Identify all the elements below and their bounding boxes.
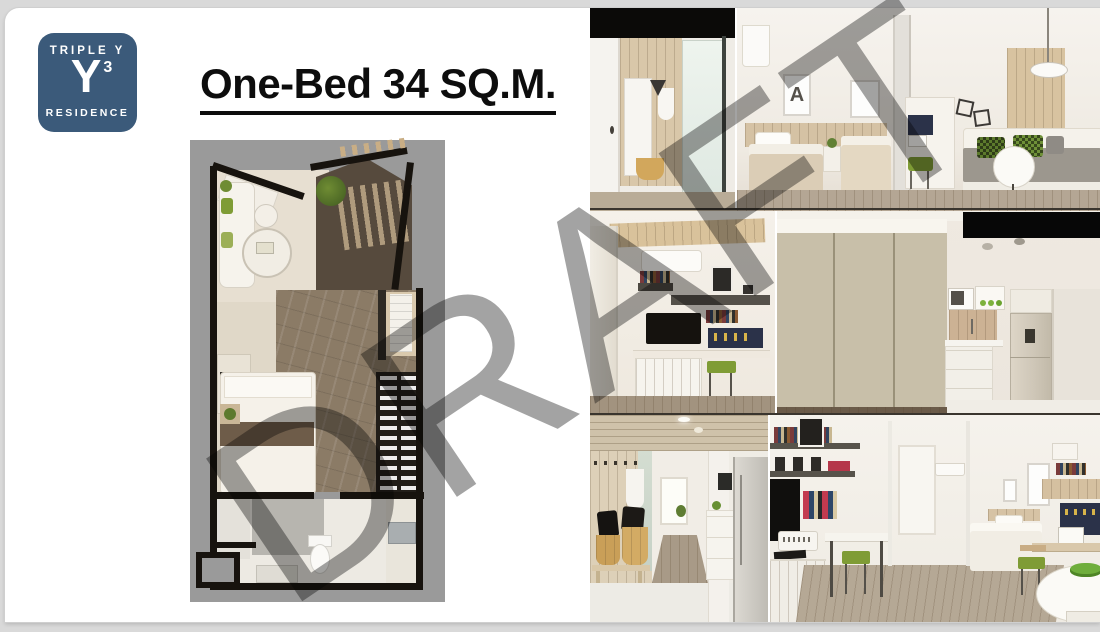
plan-sofa-plant [220, 180, 232, 192]
desk-pegboard [908, 115, 933, 135]
plan-shoe-shelf-left [380, 376, 397, 490]
green-apples [980, 300, 986, 306]
fridge-split [1010, 357, 1050, 358]
shelf [638, 283, 673, 291]
logo-superscript: 3 [103, 59, 112, 76]
photo-column-gap [775, 211, 777, 413]
plan-wall-bottom [210, 583, 422, 590]
photo-entrance-shower [590, 8, 737, 211]
plan-shower-zone [217, 499, 250, 559]
hall-door [898, 445, 936, 535]
chair-back [710, 341, 736, 348]
pegboard-notes [1065, 509, 1095, 515]
plan-sofa-pillow [221, 198, 233, 214]
pendant-lamp [1030, 62, 1068, 78]
plan-toilet-bowl [310, 544, 330, 574]
ceiling-light [694, 427, 703, 433]
far-window [660, 477, 688, 525]
plan-bed-pillows [224, 376, 312, 398]
poster-frame: A [783, 74, 811, 116]
wall-shelf-box [1052, 443, 1078, 460]
fridge-handle [740, 475, 742, 565]
fridge-display [1025, 329, 1035, 343]
door-handle [610, 126, 614, 134]
plan-counter-edge [378, 290, 386, 360]
ceiling-spot [982, 243, 993, 250]
table-drawer [1066, 611, 1100, 622]
chair-legs [910, 171, 931, 189]
ac-unit [641, 250, 702, 272]
wardrobe-door-gap [833, 233, 835, 407]
wood-ceiling [610, 218, 766, 247]
book-row [706, 310, 738, 323]
hooks-row [594, 461, 638, 465]
logo-monogram: Y3 [71, 59, 111, 105]
desk-laptop [908, 135, 927, 147]
pegboard-notes [714, 333, 754, 341]
cube-shelf [973, 109, 991, 127]
plan-wall-bath-right [340, 492, 424, 499]
photo-bedroom: A [737, 8, 1100, 211]
glass-frame [888, 421, 892, 566]
logo-monogram-letter: Y [71, 50, 102, 102]
plan-table-tray [256, 242, 274, 254]
basket [622, 527, 648, 565]
window-light [590, 226, 618, 406]
plant-on-unit [712, 501, 721, 510]
ceiling-recess [963, 212, 1100, 238]
side-table [823, 146, 841, 172]
plan-shaft-box [196, 552, 240, 588]
plan-wall-right [416, 288, 423, 590]
photo-living [770, 415, 1100, 622]
ceiling-spot [1014, 238, 1025, 245]
wood-band [1042, 479, 1100, 499]
photo-column-gap [768, 415, 770, 622]
photo-row-seam [590, 208, 1100, 210]
plan-kitchen-shelves [390, 294, 412, 352]
photo-hallway [590, 415, 770, 622]
shower-glass [682, 40, 726, 194]
green-chair-seat [707, 361, 736, 373]
small-frames [775, 457, 825, 471]
red-books [828, 461, 850, 471]
photo-kitchen [777, 211, 1100, 413]
radio-grille [783, 537, 811, 542]
black-bag [597, 510, 620, 538]
salad-greens [1070, 563, 1100, 577]
chair-legs [845, 564, 868, 594]
drawer-unit [706, 510, 734, 580]
desk-chair [908, 157, 933, 171]
green-chair [842, 551, 870, 564]
floor [590, 396, 777, 413]
wood-backsplash [949, 310, 997, 341]
open-shelf [975, 286, 1005, 310]
drawer-unit [945, 346, 993, 408]
shower-frame [722, 36, 726, 196]
built-in-microwave [718, 473, 732, 490]
poster-letter: A [790, 84, 804, 107]
white-floor [947, 400, 1100, 413]
book-row [640, 271, 670, 283]
plan-bed-throw [220, 422, 314, 446]
desk-surface [633, 350, 770, 358]
bw-poster [711, 266, 733, 293]
side-table-plant [827, 138, 837, 148]
faucet [971, 319, 973, 334]
ac-unit [742, 25, 770, 67]
logo-brand-bottom: RESIDENCE [46, 107, 130, 119]
plan-sofa-pillow [221, 232, 233, 248]
plan-balcony-plant [316, 176, 346, 206]
shelf [770, 471, 855, 477]
microwave-door [951, 291, 964, 305]
photo-row-seam [590, 413, 1100, 415]
photo-workspace [590, 211, 777, 413]
plan-wall-bath-left [210, 492, 314, 499]
basket [636, 158, 664, 180]
basket [596, 535, 620, 565]
ac-unit [935, 463, 965, 476]
plan-side-table [254, 204, 278, 228]
page-surface: TRIPLE Y Y3 RESIDENCE One-Bed 34 SQ.M. [5, 8, 1100, 622]
paris-frame [1003, 479, 1017, 502]
laptop [1058, 527, 1084, 544]
fridge [733, 457, 770, 622]
plan-wall-bath-stub [210, 542, 256, 548]
entry-door [590, 38, 620, 198]
plan-wall-left [210, 166, 217, 590]
far-plant [676, 505, 686, 517]
wardrobe-door-gap [893, 233, 895, 407]
brand-logo-badge: TRIPLE Y Y3 RESIDENCE [38, 33, 137, 132]
photo-column-gap [735, 8, 737, 208]
tall-cabinet [1052, 289, 1100, 407]
hanging-coat [626, 469, 644, 509]
upper-cabinet [1010, 289, 1052, 313]
book-row [1056, 463, 1086, 475]
floor-plan-image [190, 140, 445, 602]
plan-nightstand-plant [224, 408, 236, 420]
wall-art [850, 80, 880, 118]
cube-shelf [956, 99, 975, 118]
gray-pillow [1046, 136, 1064, 154]
ceiling-light [678, 417, 690, 422]
plan-sink [388, 522, 416, 544]
plan-vanity [256, 565, 298, 583]
chair-back [1020, 545, 1046, 551]
shelf-long [671, 295, 770, 305]
pennant [650, 80, 666, 96]
slide-canvas: TRIPLE Y Y3 RESIDENCE One-Bed 34 SQ.M. [0, 0, 1100, 632]
color-books [803, 491, 837, 519]
bw-poster [798, 417, 824, 447]
ceiling-recess [590, 8, 735, 38]
tv [646, 313, 701, 344]
page-title: One-Bed 34 SQ.M. [200, 60, 556, 115]
green-chair [1018, 557, 1045, 569]
wardrobe [777, 233, 947, 407]
coffee-table [993, 146, 1035, 188]
pendant-cord [1047, 8, 1049, 66]
wood-nook [1007, 48, 1065, 132]
